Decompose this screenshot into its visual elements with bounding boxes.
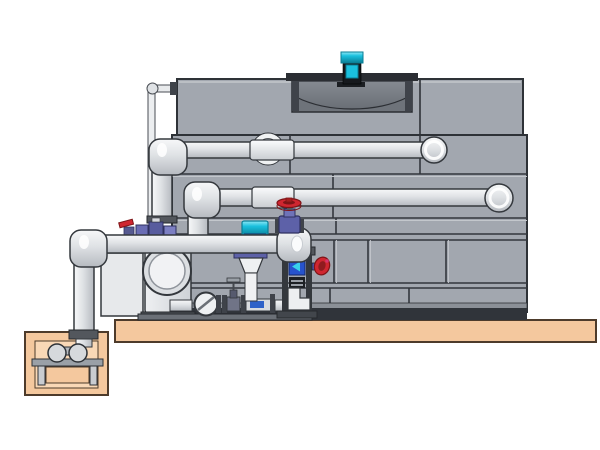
sump-pump-motor [48,344,66,362]
frame-base-plate [277,311,317,318]
manifold-left-elbow [70,230,107,267]
ball-valve-red-lever [119,219,134,227]
riser-coupling [69,330,98,339]
concrete-slab [115,320,596,342]
platform-leg-left [38,366,45,385]
pump-side-panel [101,253,143,316]
side-valve-pin [325,259,329,263]
junction-label [250,301,264,308]
illustration-canvas [0,0,600,450]
makeup-line-elbow [147,83,158,94]
cooling-tower-body [172,135,527,312]
cooling-tower-illustration [0,0,600,450]
return-elbow [184,182,220,218]
platform-leg-right [90,366,97,385]
fan-motor-cap [341,52,363,63]
supply-pipe-sleeve [250,140,294,160]
flange [216,295,221,313]
sump-pump-volute [69,344,87,362]
flange [222,295,227,313]
fan-motor-window [346,65,358,78]
cooling-tower [172,52,527,320]
frame-leg-left [282,255,288,314]
pit-inner-wall [46,367,89,383]
sump-riser-pipe [69,258,98,347]
frame-control-box [289,277,305,288]
fan-cowl-rim-left [292,81,299,111]
supply-elbow [149,139,187,175]
sump-pit [25,332,108,395]
sump-pump-platform [32,359,103,366]
gate-valve-handle [227,278,240,282]
injection-pipe [245,273,257,301]
globe-valve-body [279,216,300,233]
fan-cowl-rim-right [405,81,412,111]
makeup-line-flange [170,82,177,95]
flange [270,294,275,313]
